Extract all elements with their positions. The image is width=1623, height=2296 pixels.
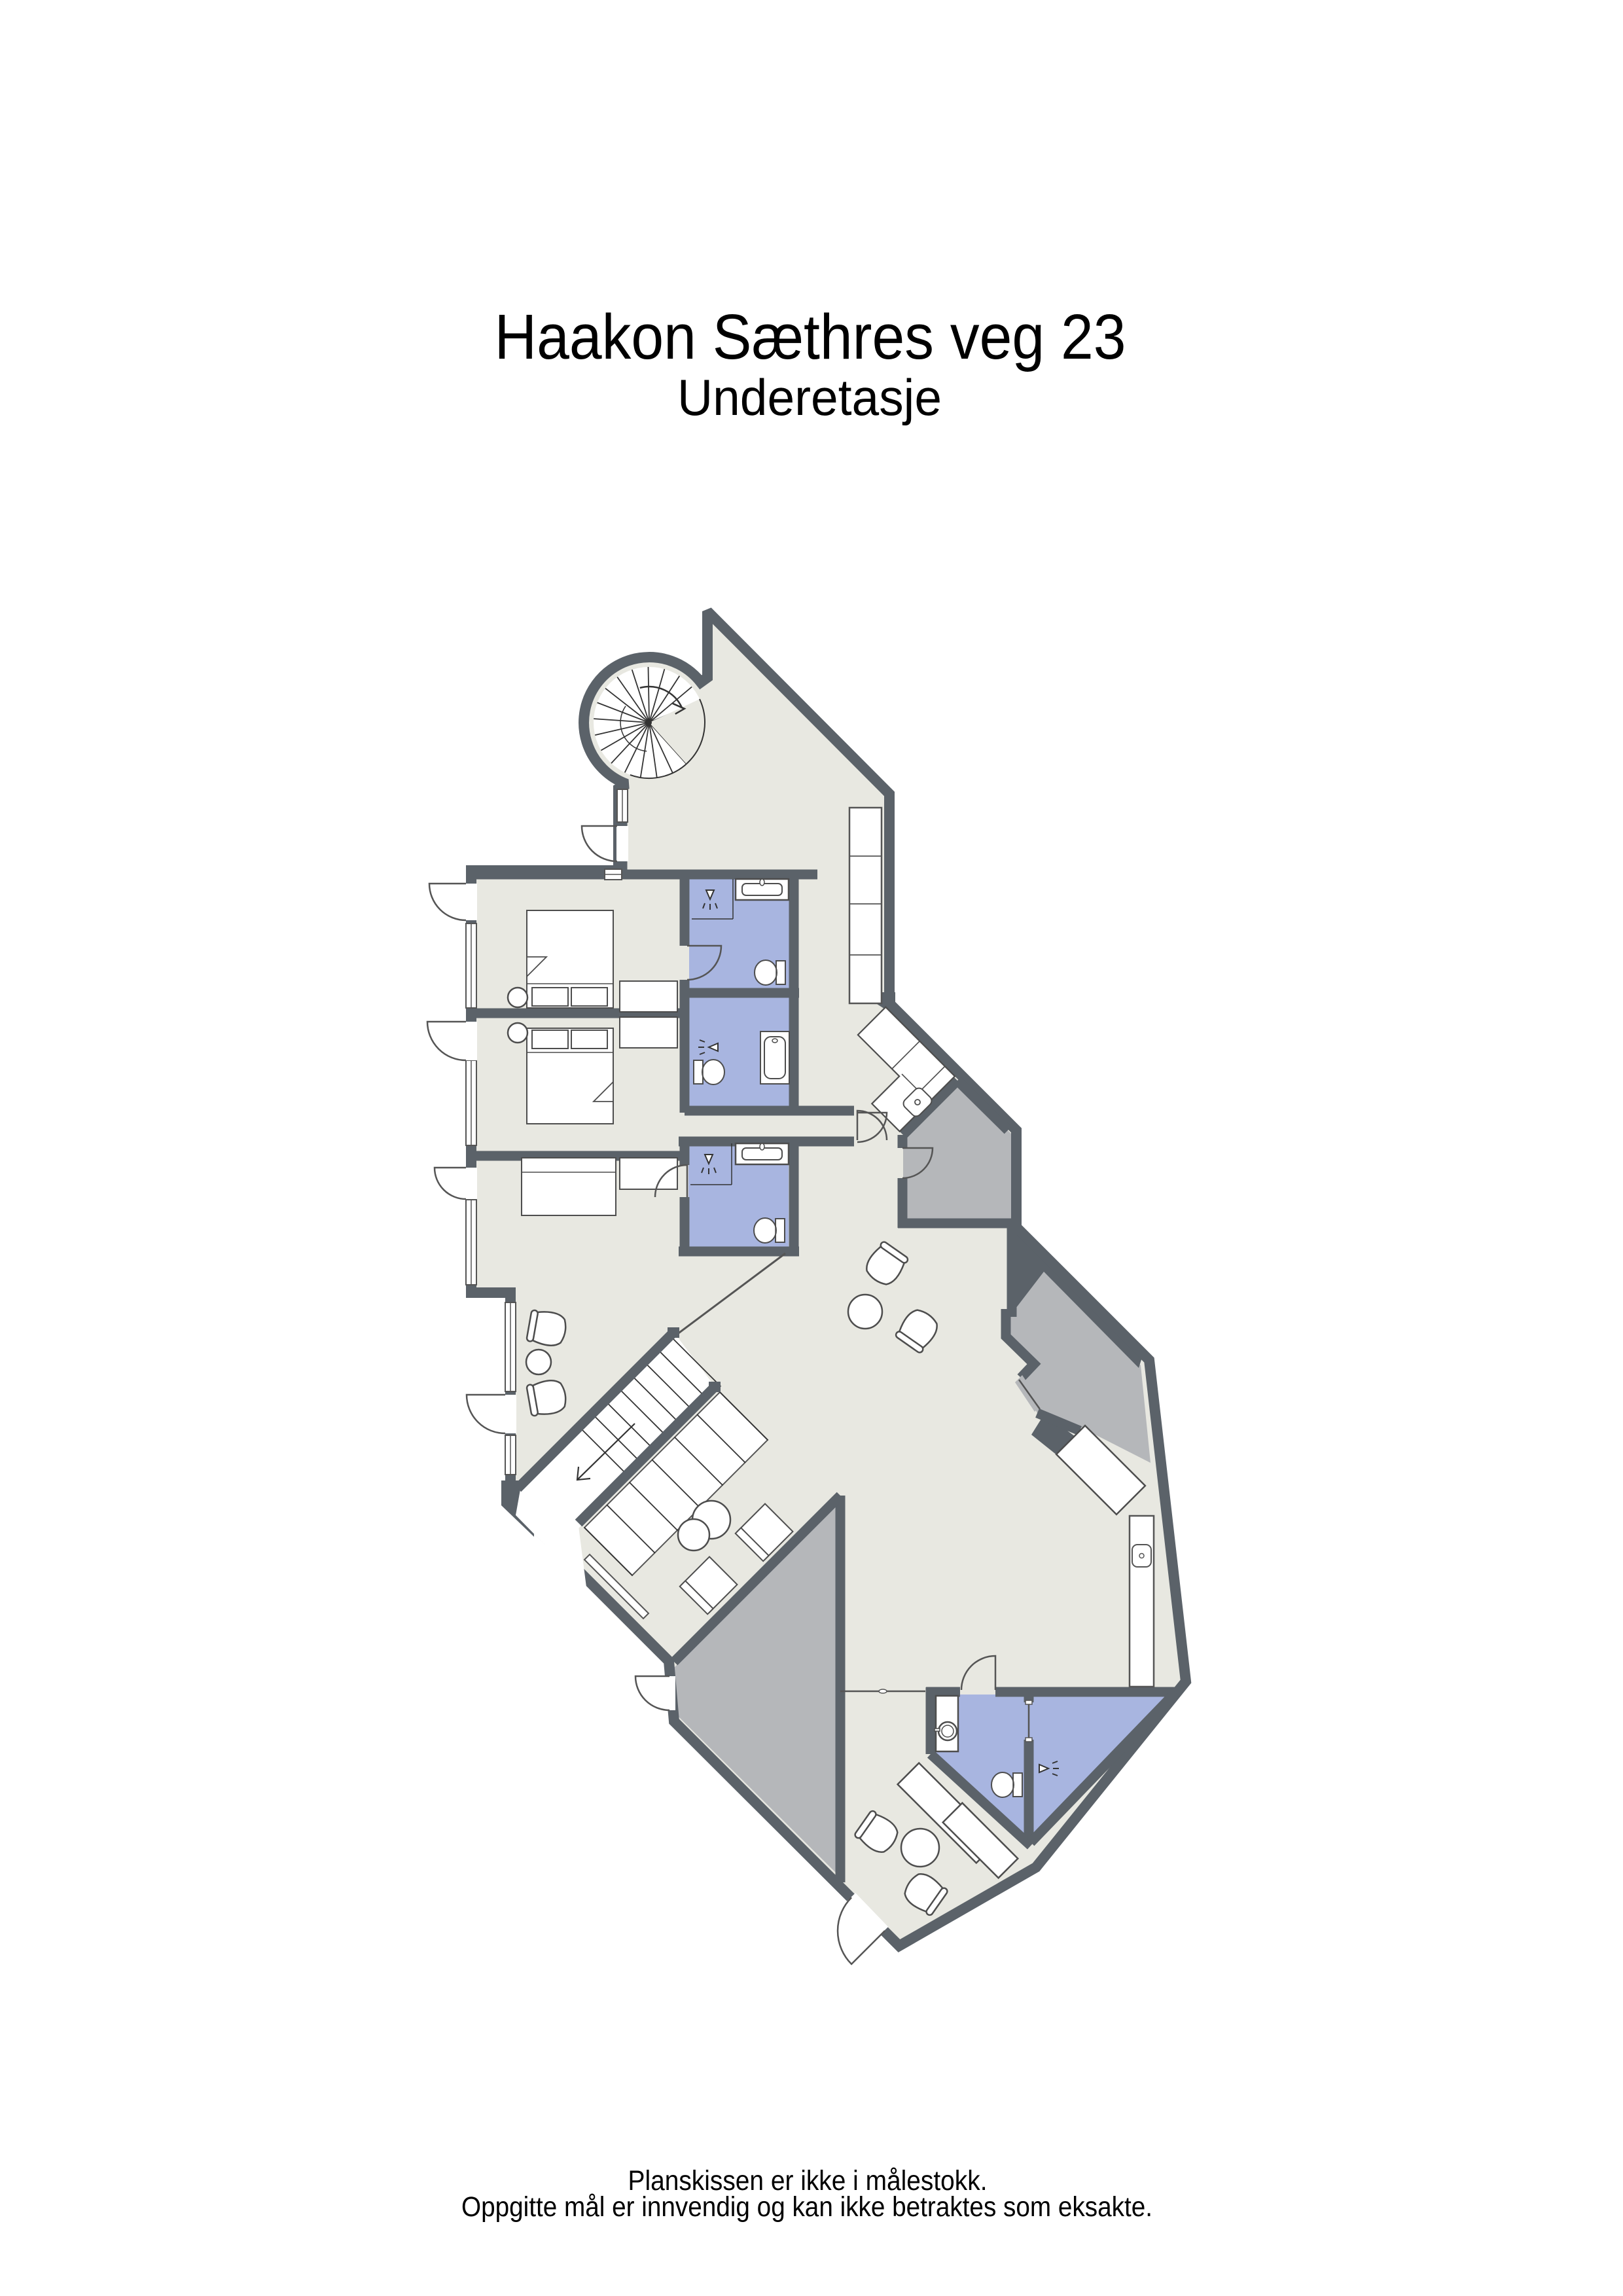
svg-text:Underetasje: Underetasje — [677, 368, 942, 426]
svg-text:Haakon Sæthres veg 23: Haakon Sæthres veg 23 — [495, 301, 1126, 372]
svg-text:Oppgitte mål er innvendig og k: Oppgitte mål er innvendig og kan ikke be… — [461, 2191, 1152, 2223]
